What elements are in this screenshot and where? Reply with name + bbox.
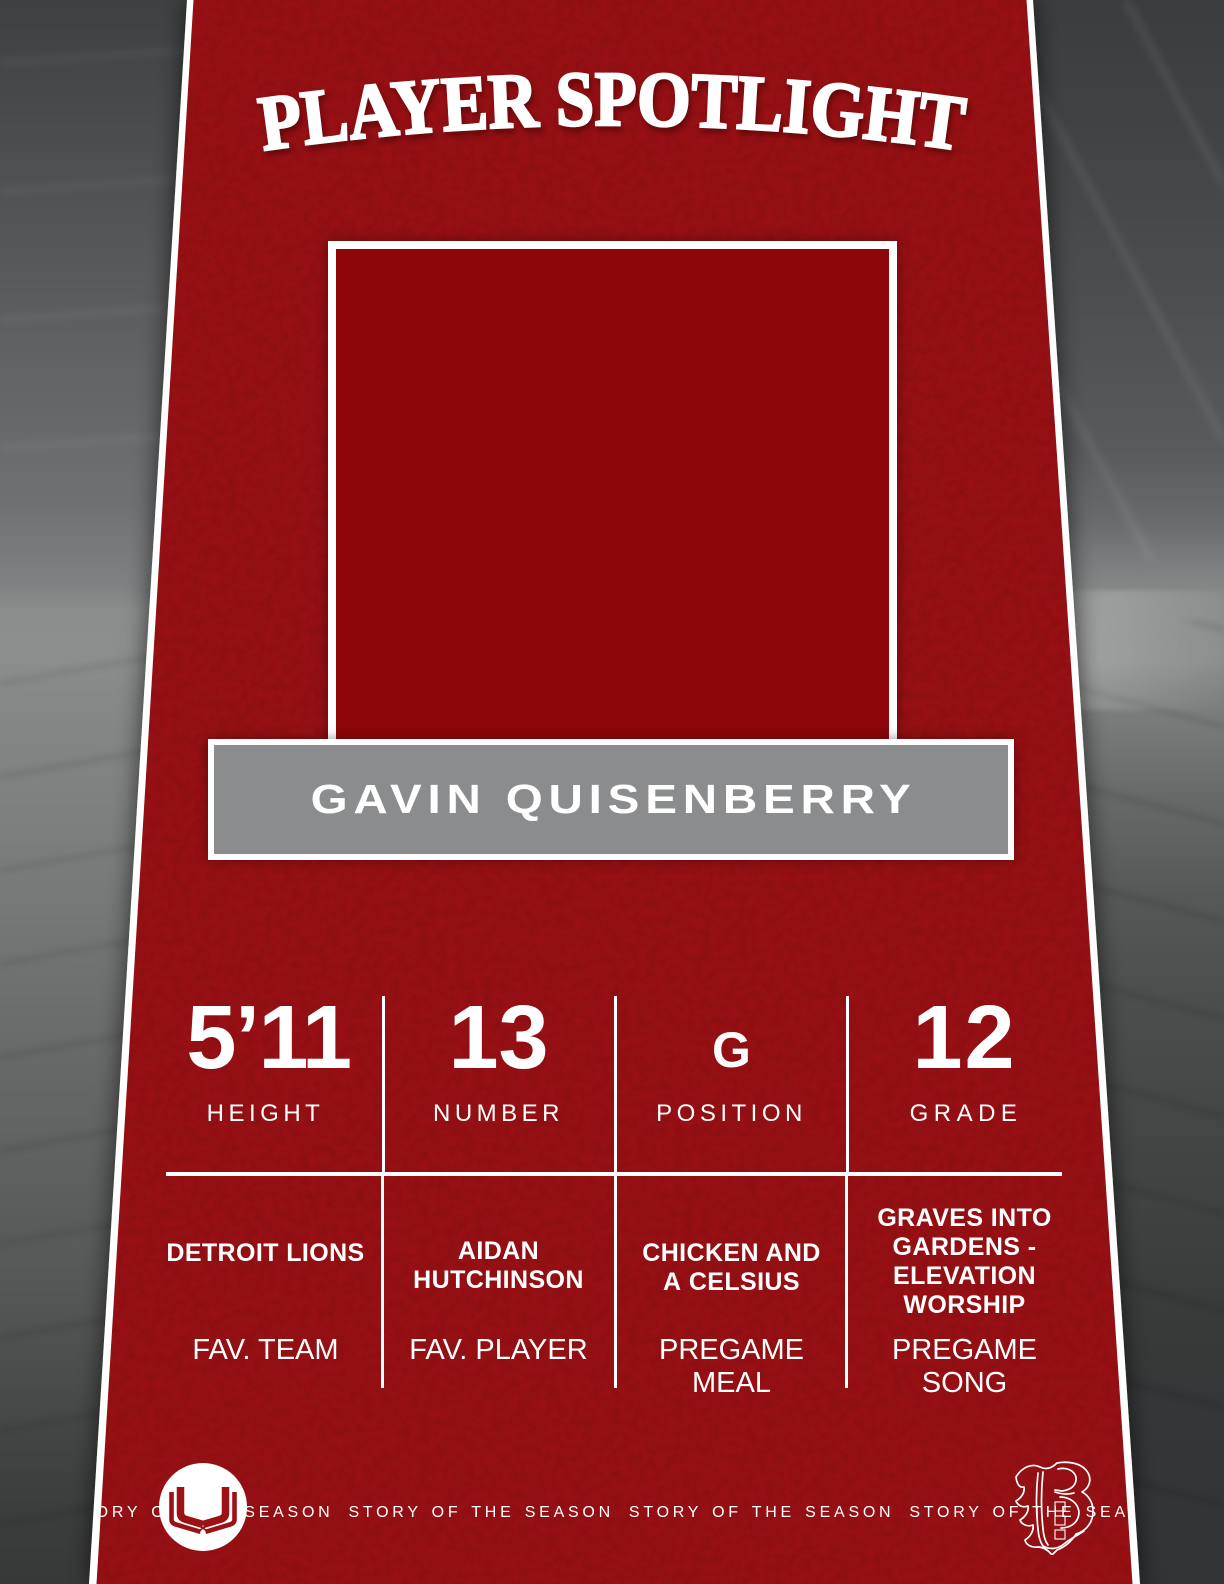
svg-text:PLAYER SPOTLIGHT: PLAYER SPOTLIGHT [254, 55, 970, 167]
